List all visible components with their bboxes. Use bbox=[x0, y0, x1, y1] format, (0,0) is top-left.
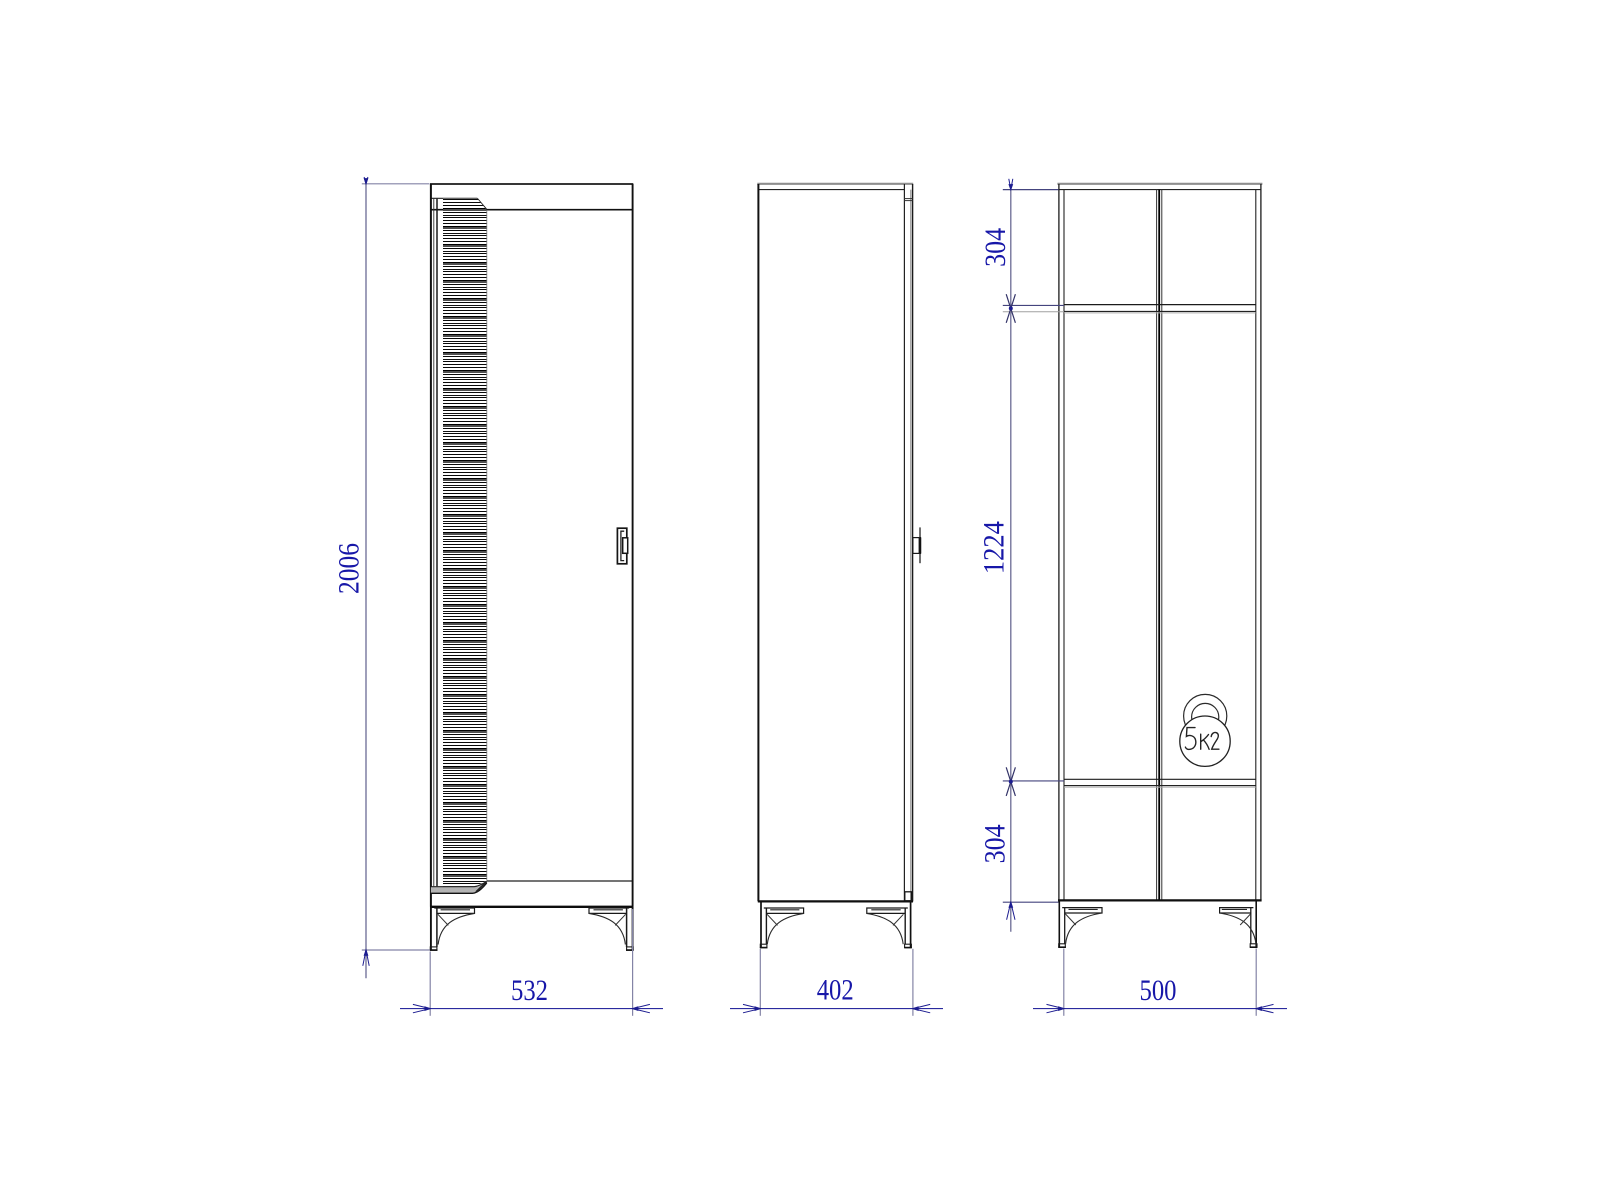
svg-text:304: 304 bbox=[979, 228, 1012, 267]
svg-text:402: 402 bbox=[817, 974, 854, 1007]
svg-text:1224: 1224 bbox=[977, 521, 1010, 574]
svg-text:532: 532 bbox=[511, 974, 548, 1007]
svg-text:500: 500 bbox=[1140, 974, 1177, 1007]
svg-text:2006: 2006 bbox=[332, 543, 365, 594]
svg-text:304: 304 bbox=[979, 824, 1012, 863]
